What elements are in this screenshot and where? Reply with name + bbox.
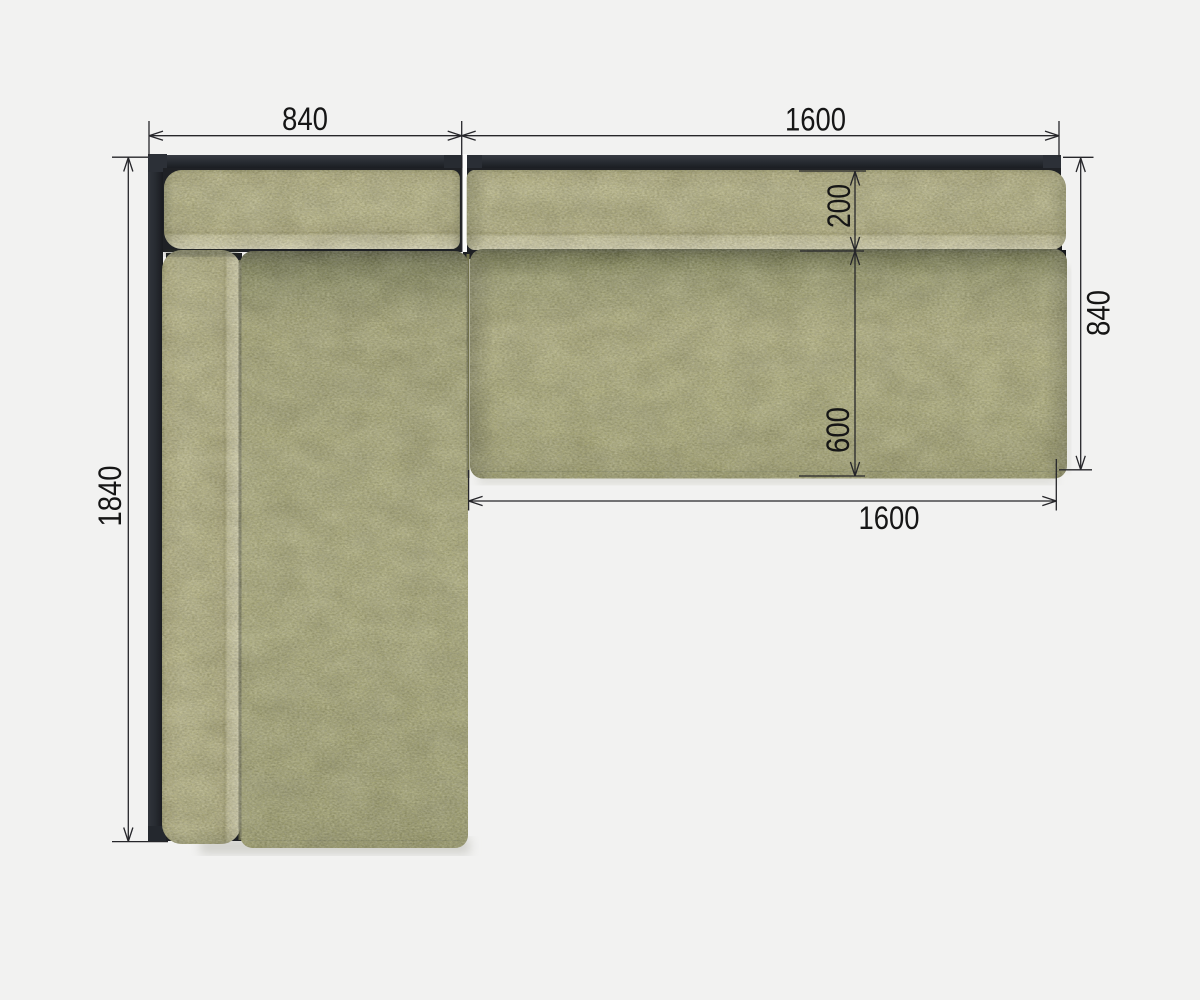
svg-text:1600: 1600 bbox=[785, 102, 846, 138]
svg-text:600: 600 bbox=[820, 407, 856, 453]
svg-text:200: 200 bbox=[821, 184, 857, 228]
svg-text:840: 840 bbox=[282, 101, 328, 137]
svg-text:840: 840 bbox=[1081, 290, 1117, 336]
svg-text:1840: 1840 bbox=[92, 466, 128, 527]
svg-text:1600: 1600 bbox=[859, 500, 920, 536]
